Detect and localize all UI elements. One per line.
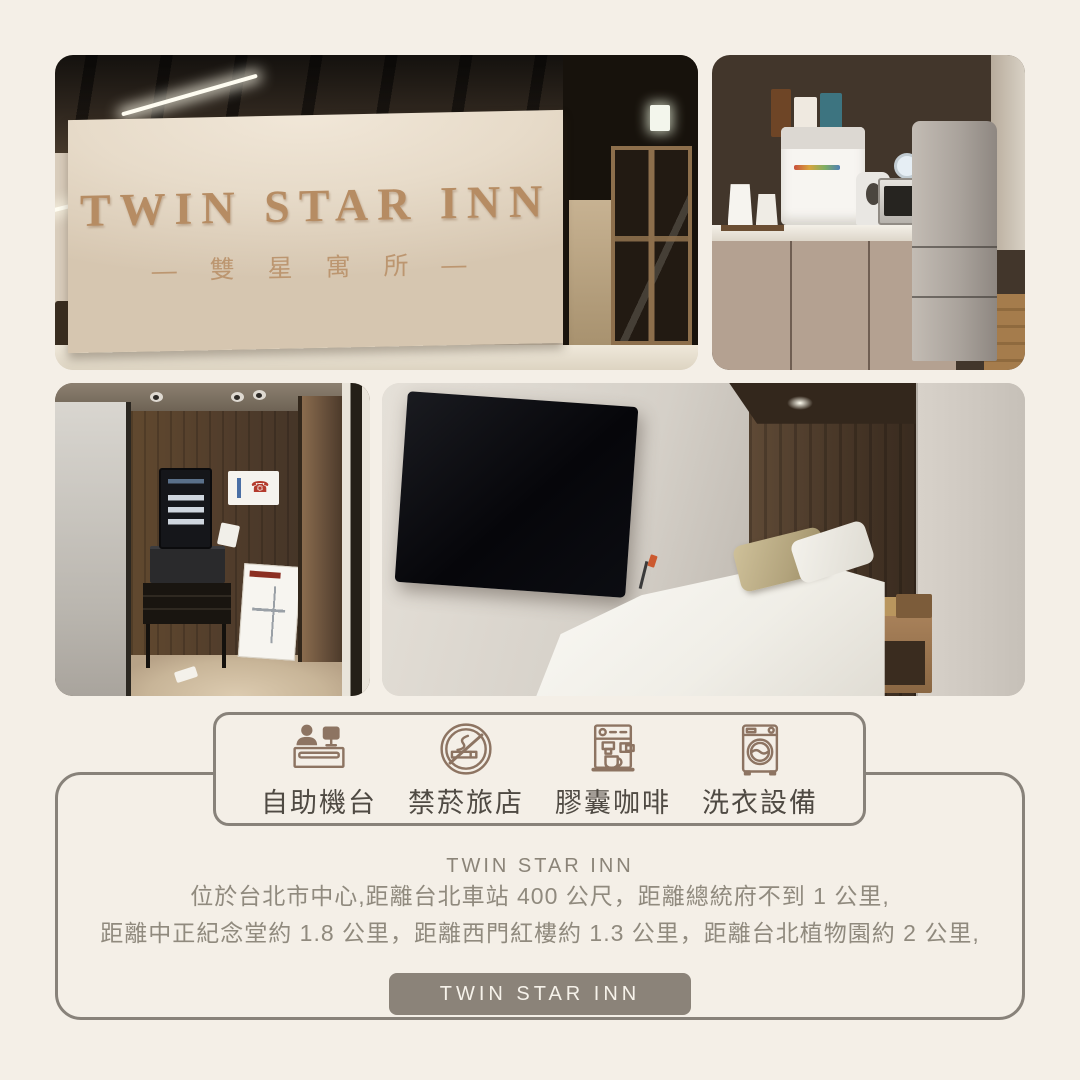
feature-label: 洗衣設備	[702, 781, 818, 820]
table-leg	[146, 624, 150, 668]
lobby-sign-subtitle: — 雙 星 寓 所 —	[152, 244, 480, 287]
features-box: 自助機台 禁菸旅店	[213, 712, 866, 826]
description-title: TWIN STAR INN	[0, 855, 1080, 878]
paper-cups	[756, 194, 778, 226]
hotel-flyer: TWIN STAR INN — 雙 星 寓 所 — ☎	[0, 0, 1080, 1080]
feature-capsule-coffee: 膠囊咖啡	[555, 719, 671, 820]
right-wall	[916, 383, 1025, 696]
kiosk-printer	[150, 546, 226, 584]
lobby-photo: TWIN STAR INN — 雙 星 寓 所 —	[55, 55, 698, 370]
frosted-glass-panel	[55, 402, 131, 696]
wood-glass-door	[611, 146, 691, 344]
reception-kiosk-icon	[288, 719, 350, 779]
wall-sign-phone: ☎	[228, 471, 278, 505]
feature-laundry: 洗衣設備	[702, 719, 818, 820]
security-camera	[150, 392, 163, 402]
no-smoking-icon	[435, 719, 497, 779]
pantry-photo	[712, 55, 1025, 370]
wood-tray	[721, 225, 784, 231]
spotlight	[787, 396, 813, 410]
description-line: 位於台北市中心,距離台北車站 400 公尺，距離總統府不到 1 公里,	[0, 878, 1080, 915]
open-door	[298, 396, 342, 662]
description-line: 距離中正紀念堂約 1.8 公里，距離西門紅樓約 1.3 公里，距離台北植物園約 …	[0, 915, 1080, 952]
checkin-kiosk-photo: ☎	[55, 383, 370, 696]
table-leg	[222, 624, 226, 668]
bedroom-photo	[382, 383, 1025, 696]
feature-self-service: 自助機台	[261, 719, 377, 820]
wall-tv	[395, 391, 639, 598]
feature-label: 自助機台	[261, 781, 377, 820]
feature-no-smoking: 禁菸旅店	[408, 719, 524, 820]
black-side-table	[143, 583, 231, 624]
hotel-name-button[interactable]: TWIN STAR INN	[389, 973, 691, 1015]
coffee-machine	[781, 127, 866, 225]
feature-label: 膠囊咖啡	[555, 781, 671, 820]
exit-sign	[650, 105, 671, 130]
tissue-box	[896, 594, 931, 617]
standing-info-board	[238, 563, 301, 661]
paper-cups	[728, 184, 753, 225]
lobby-side-wall	[569, 200, 611, 345]
ceiling-wood	[729, 383, 928, 424]
coffee-machine-icon	[582, 719, 644, 779]
feature-label: 禁菸旅店	[408, 781, 524, 820]
description-block: TWIN STAR INN 位於台北市中心,距離台北車站 400 公尺，距離總統…	[0, 855, 1080, 952]
phone-icon: ☎	[251, 480, 270, 495]
kiosk-screen	[159, 468, 213, 549]
door-frame	[342, 383, 370, 696]
lobby-sign-title: TWIN STAR INN	[80, 174, 551, 237]
washing-machine-icon	[729, 719, 791, 779]
refrigerator	[912, 121, 997, 360]
lobby-sign-wall: TWIN STAR INN — 雙 星 寓 所 —	[68, 110, 563, 353]
